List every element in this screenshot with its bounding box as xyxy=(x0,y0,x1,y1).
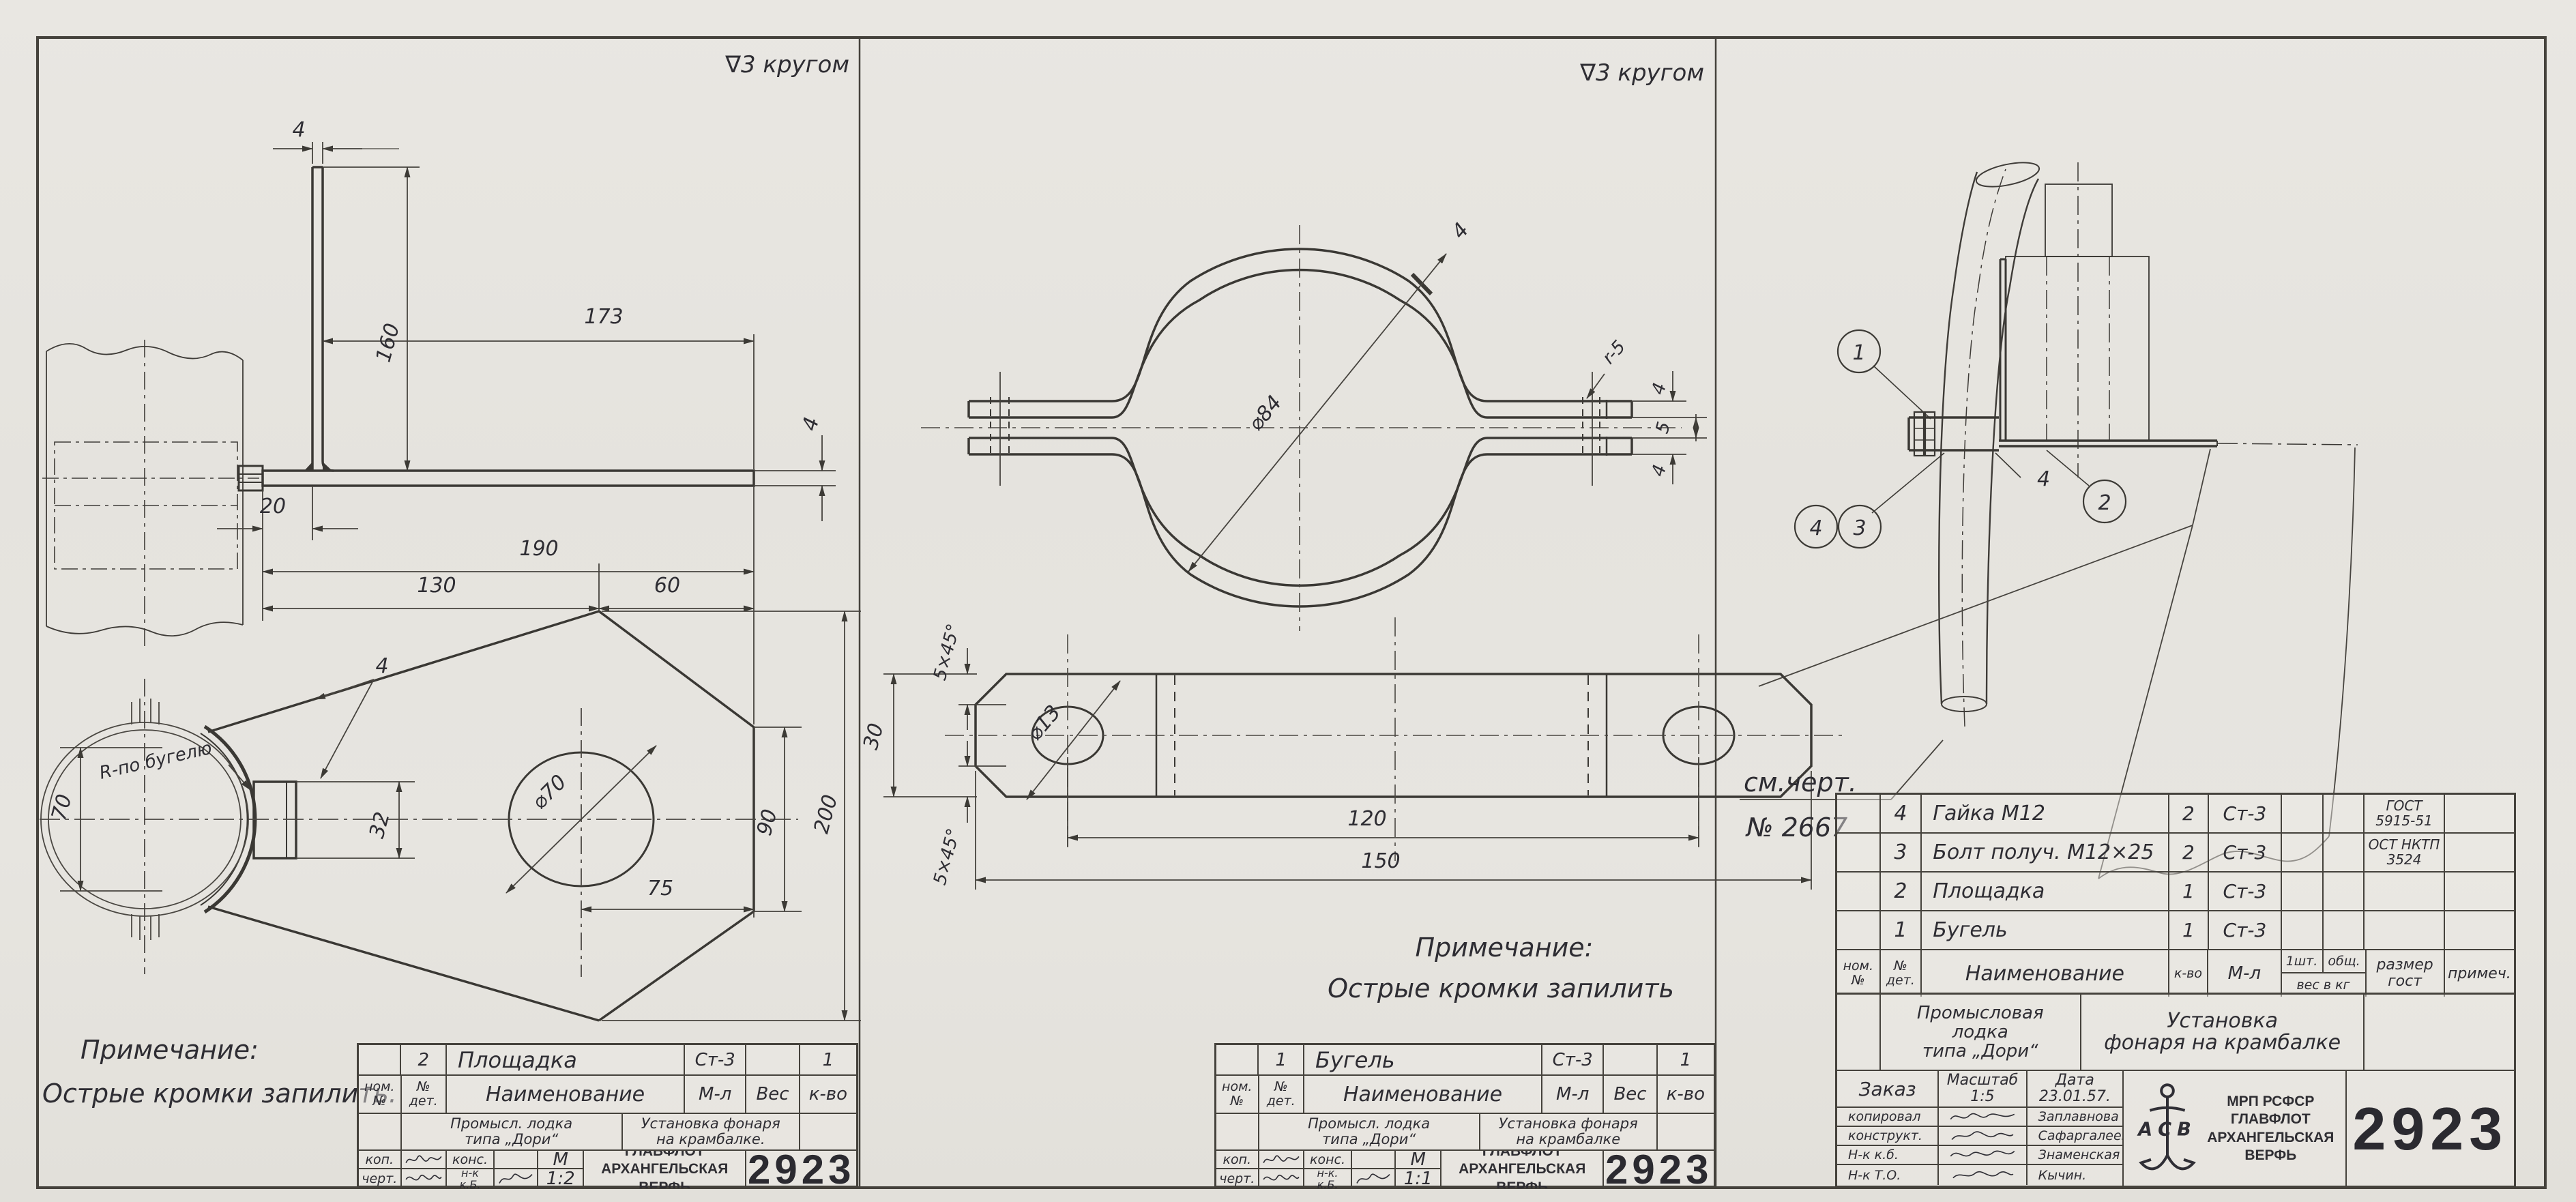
dim-split-left: 130 xyxy=(417,574,456,598)
hull-break-view xyxy=(42,340,259,648)
role-label: Н-к Т.О. xyxy=(1837,1165,1939,1185)
dim-end-offset: 20 xyxy=(260,495,286,518)
cell xyxy=(1658,1114,1714,1149)
dim-overall-height: 200 xyxy=(810,792,843,836)
header-name: Наименование xyxy=(447,1076,685,1113)
title-block-assembly: Промысловая лодка типа „Дори“ Установка … xyxy=(1835,995,2516,1188)
blueprint-sheet: ∇3 кругом xyxy=(0,0,2576,1202)
drawing-number: 2923 xyxy=(746,1151,856,1188)
project-name: Промысловая лодка типа „Дори“ xyxy=(1881,995,2081,1070)
platform-side-dims xyxy=(217,142,836,724)
item-material: Ст-3 xyxy=(1542,1045,1604,1074)
signature xyxy=(495,1169,539,1188)
part-pos: 2 xyxy=(1881,873,1922,910)
logo-letters: АСВ xyxy=(2137,1119,2197,1140)
part-pos: 3 xyxy=(1881,834,1922,871)
cell xyxy=(359,1045,401,1074)
project-name: Промысл. лодка типа „Дори“ xyxy=(402,1114,623,1149)
drawing-title: Установка фонаря на крамбалке xyxy=(2081,995,2365,1070)
part-qty: 2 xyxy=(2169,834,2209,871)
cell xyxy=(800,1114,856,1149)
drawing-number: 2923 xyxy=(1604,1151,1714,1188)
kop-label: коп. xyxy=(1216,1151,1259,1168)
cell xyxy=(2445,911,2514,949)
part-name: Болт получ. М12×25 xyxy=(1922,834,2169,871)
item-name: Площадка xyxy=(447,1045,685,1074)
kop-label: коп. xyxy=(359,1151,402,1168)
header-det: № дет. xyxy=(1259,1076,1304,1113)
drawing-title: Установка фонаря на крамбалке. xyxy=(623,1114,800,1149)
table-row: 4 Гайка М12 2 Ст-3 ГОСТ 5915-51 xyxy=(1837,795,2514,834)
role-label: конструкт. xyxy=(1837,1127,1939,1145)
table-header-row: ном. № № дет. Наименование к-во М-л 1шт.… xyxy=(1837,950,2514,997)
dim-ear-gap: 5 xyxy=(1652,420,1675,436)
dim-ear-bottom: 4 xyxy=(1648,463,1671,479)
signature xyxy=(1259,1151,1305,1168)
header-total: общ. xyxy=(2324,950,2365,972)
assembly-thickness-callout: 4 xyxy=(2037,467,2050,491)
cell xyxy=(2282,873,2324,910)
part-standard: ОСТ НКТП 3524 xyxy=(2365,834,2444,871)
dim-clamp-dia: ⌀84 xyxy=(1244,391,1287,436)
cell xyxy=(1837,834,1881,871)
header-qty: к-во xyxy=(800,1076,856,1113)
role-name: Кычин. xyxy=(2028,1165,2122,1185)
dim-hole-dia: ⌀70 xyxy=(527,770,572,815)
platform-plan-view xyxy=(201,611,754,1021)
clamp-bar-dims xyxy=(883,648,1811,890)
pipe-phantom xyxy=(40,679,798,977)
table-row: 3 Болт получ. М12×25 2 Ст-3 ОСТ НКТП 352… xyxy=(1837,834,2514,873)
role-name: Заплавнова xyxy=(2028,1108,2122,1126)
dim-side-height: 90 xyxy=(752,807,782,838)
dim-edge-callout: 4 xyxy=(375,654,388,678)
dim-band-thickness: 4 xyxy=(1447,218,1474,244)
part-pos: 4 xyxy=(1881,795,1922,832)
header-mat: М-л xyxy=(1542,1076,1604,1113)
title-block-clamp: 1 Бугель Ст-3 1 ном. № № дет. Наименован… xyxy=(1214,1043,1716,1188)
clamp-bar-centerlines xyxy=(945,617,1842,861)
header-qty: к-во xyxy=(1658,1076,1714,1113)
assembly-balloons xyxy=(1795,330,2126,548)
assembly-clamp xyxy=(1909,412,1999,456)
org-name: ГЛАВФЛОТ АРХАНГЕЛЬСКАЯ ВЕРФЬ xyxy=(584,1151,746,1188)
drawing-number: 2923 xyxy=(2347,1071,2514,1186)
part-name: Бугель xyxy=(1922,911,2169,949)
cell xyxy=(1352,1151,1396,1168)
part-standard: ГОСТ 5915-51 xyxy=(2365,795,2444,832)
scale-m-label: М xyxy=(1396,1151,1440,1168)
dim-plate-thickness: 4 xyxy=(797,415,824,434)
header-weight: Вес xyxy=(746,1076,800,1113)
cell xyxy=(2445,834,2514,871)
dim-hole-spacing: 120 xyxy=(1347,807,1386,831)
kons-label: конс. xyxy=(447,1151,495,1168)
balloon-2-label: 2 xyxy=(2098,491,2111,515)
signature xyxy=(402,1169,448,1188)
anchor-logo-icon: АСВ xyxy=(2135,1078,2200,1180)
role-label: Н-к к.б. xyxy=(1837,1146,1939,1164)
org-name: МРП РСФСР ГЛАВФЛОТ АРХАНГЕЛЬСКАЯ ВЕРФЬ xyxy=(2207,1093,2334,1164)
header-det: № дет. xyxy=(1881,950,1922,997)
role-name: Сафаргалеева xyxy=(2028,1127,2122,1145)
header-weight-group: 1шт. общ. вес в кг xyxy=(2282,950,2367,997)
part-material: Ст-3 xyxy=(2209,795,2282,832)
item-qty: 1 xyxy=(1658,1045,1714,1074)
item-name: Бугель xyxy=(1304,1045,1542,1074)
platform-plan-dims xyxy=(60,611,861,1021)
item-pos: 2 xyxy=(401,1045,446,1074)
cell xyxy=(2324,795,2365,832)
cell xyxy=(2365,995,2514,1070)
item-pos: 1 xyxy=(1259,1045,1304,1074)
dim-leg-height: 160 xyxy=(372,321,405,364)
signature xyxy=(1352,1169,1396,1188)
part-qty: 2 xyxy=(2169,795,2209,832)
dim-fillet-radius: r-5 xyxy=(1598,337,1630,368)
cell xyxy=(1604,1045,1657,1074)
part-standard xyxy=(2365,873,2444,910)
cell xyxy=(359,1114,402,1149)
part-qty: 1 xyxy=(2169,911,2209,949)
note-text-panel2: Острые кромки запилить xyxy=(1328,973,1674,1003)
order-label: Заказ xyxy=(1837,1071,1939,1106)
cell xyxy=(2324,911,2365,949)
note-title-panel1: Примечание: xyxy=(80,1035,259,1065)
note-title-panel2: Примечание: xyxy=(1416,933,1594,963)
assembly-platform-lamp xyxy=(1999,162,2358,478)
part-material: Ст-3 xyxy=(2209,834,2282,871)
header-weight: Вес xyxy=(1604,1076,1657,1113)
header-name: Наименование xyxy=(1304,1076,1542,1113)
cell xyxy=(746,1045,800,1074)
chert-label: черт. xyxy=(359,1169,402,1188)
cell xyxy=(2282,795,2324,832)
header-per-item: 1шт. xyxy=(2282,950,2324,972)
signature xyxy=(1939,1108,2027,1126)
drawing-title: Установка фонаря на крамбалке xyxy=(1480,1114,1658,1149)
dim-leg-thickness: 4 xyxy=(292,118,305,142)
cell xyxy=(2324,834,2365,871)
signature xyxy=(1939,1146,2027,1164)
part-material: Ст-3 xyxy=(2209,911,2282,949)
signature xyxy=(402,1151,448,1168)
signature xyxy=(1259,1169,1305,1188)
header-pos: ном. № xyxy=(1837,950,1881,997)
nk-label: н-к к.Б. xyxy=(447,1169,495,1188)
header-pos: ном. № xyxy=(1216,1076,1259,1113)
table-row: 2 Площадка 1 Ст-3 xyxy=(1837,873,2514,911)
project-name: Промысл. лодка типа „Дори“ xyxy=(1259,1114,1480,1149)
surface-finish-note-panel2: ∇3 кругом xyxy=(1579,59,1704,87)
nk-label: н-к. к.Б. xyxy=(1304,1169,1352,1188)
clamp-ring-dims xyxy=(1000,254,1707,572)
cell xyxy=(1837,995,1881,1070)
dim-boss-height: 32 xyxy=(365,810,395,841)
cell xyxy=(1837,911,1881,949)
signature xyxy=(1939,1165,2027,1185)
cell xyxy=(2324,873,2365,910)
part-qty: 1 xyxy=(2169,873,2209,910)
header-weight-kg: вес в кг xyxy=(2282,973,2365,997)
item-qty: 1 xyxy=(800,1045,856,1074)
part-name: Гайка М12 xyxy=(1922,795,2169,832)
cell xyxy=(1216,1114,1259,1149)
ref-note-line2: № 2667 xyxy=(1745,812,1847,842)
cell xyxy=(2282,834,2324,871)
dim-hole-offset: 75 xyxy=(647,877,673,900)
dim-top-length: 173 xyxy=(584,305,623,329)
chert-label: черт. xyxy=(1216,1169,1259,1188)
cell xyxy=(2445,873,2514,910)
dim-ear-top: 4 xyxy=(1648,381,1671,397)
header-remark: примеч. xyxy=(2445,950,2514,997)
surface-finish-note-panel1: ∇3 кругом xyxy=(724,51,849,78)
dim-bar-length: 150 xyxy=(1361,849,1400,873)
cell xyxy=(2282,911,2324,949)
role-label: копировал xyxy=(1837,1108,1939,1126)
item-material: Ст-3 xyxy=(685,1045,746,1074)
shipyard-logo-cell: АСВ МРП РСФСР ГЛАВФЛОТ АРХАНГЕЛЬСКАЯ ВЕР… xyxy=(2124,1071,2347,1186)
scale-m-label: М xyxy=(538,1151,583,1168)
balloon-3-label: 3 xyxy=(1853,516,1866,540)
scale-value: 1:2 xyxy=(538,1169,583,1188)
dim-split-right: 60 xyxy=(654,574,680,598)
balloon-4-label: 4 xyxy=(1809,516,1822,540)
part-standard xyxy=(2365,911,2444,949)
header-name: Наименование xyxy=(1922,950,2169,997)
cell xyxy=(1837,873,1881,910)
title-block-platform: 2 Площадка Ст-3 1 ном. № № дет. Наименов… xyxy=(357,1043,858,1188)
header-det: № дет. xyxy=(402,1076,447,1113)
cell xyxy=(1837,795,1881,832)
dim-bar-width: 30 xyxy=(859,721,889,752)
assembly-davit-pipe xyxy=(1939,158,2041,727)
cell xyxy=(1216,1045,1259,1074)
cell xyxy=(495,1151,539,1168)
clamp-ring-centerlines xyxy=(921,225,1682,631)
table-row: 1 Бугель 1 Ст-3 xyxy=(1837,911,2514,950)
org-name: ГЛАВФЛОТ АРХАНГЕЛЬСКАЯ ВЕРФЬ xyxy=(1441,1151,1604,1188)
signature xyxy=(1939,1127,2027,1145)
platform-side-view xyxy=(239,167,754,490)
header-qty: к-во xyxy=(2169,950,2209,997)
parts-table: 4 Гайка М12 2 Ст-3 ГОСТ 5915-51 3 Болт п… xyxy=(1835,793,2516,995)
part-name: Площадка xyxy=(1922,873,2169,910)
dim-overall-length: 190 xyxy=(519,537,558,561)
label-radius-note: R-по бугелю xyxy=(98,738,214,784)
kons-label: конс. xyxy=(1304,1151,1352,1168)
note-text-panel1: Острые кромки запилить. xyxy=(42,1079,397,1109)
date-cell: Дата 23.01.57. xyxy=(2028,1071,2122,1106)
cell xyxy=(2445,795,2514,832)
header-pos: ном. № xyxy=(359,1076,402,1113)
part-material: Ст-3 xyxy=(2209,873,2282,910)
header-mat: М-л xyxy=(2208,950,2281,997)
part-pos: 1 xyxy=(1881,911,1922,949)
header-mat: М-л xyxy=(685,1076,746,1113)
scale-cell: Масштаб 1:5 xyxy=(1939,1071,2027,1106)
dim-chamfer-bottom: 5×45° xyxy=(930,826,965,887)
scale-value: 1:1 xyxy=(1396,1169,1440,1188)
role-name: Знаменская xyxy=(2028,1146,2122,1164)
header-size-gost: размер гост xyxy=(2367,950,2445,997)
balloon-1-label: 1 xyxy=(1852,341,1865,365)
